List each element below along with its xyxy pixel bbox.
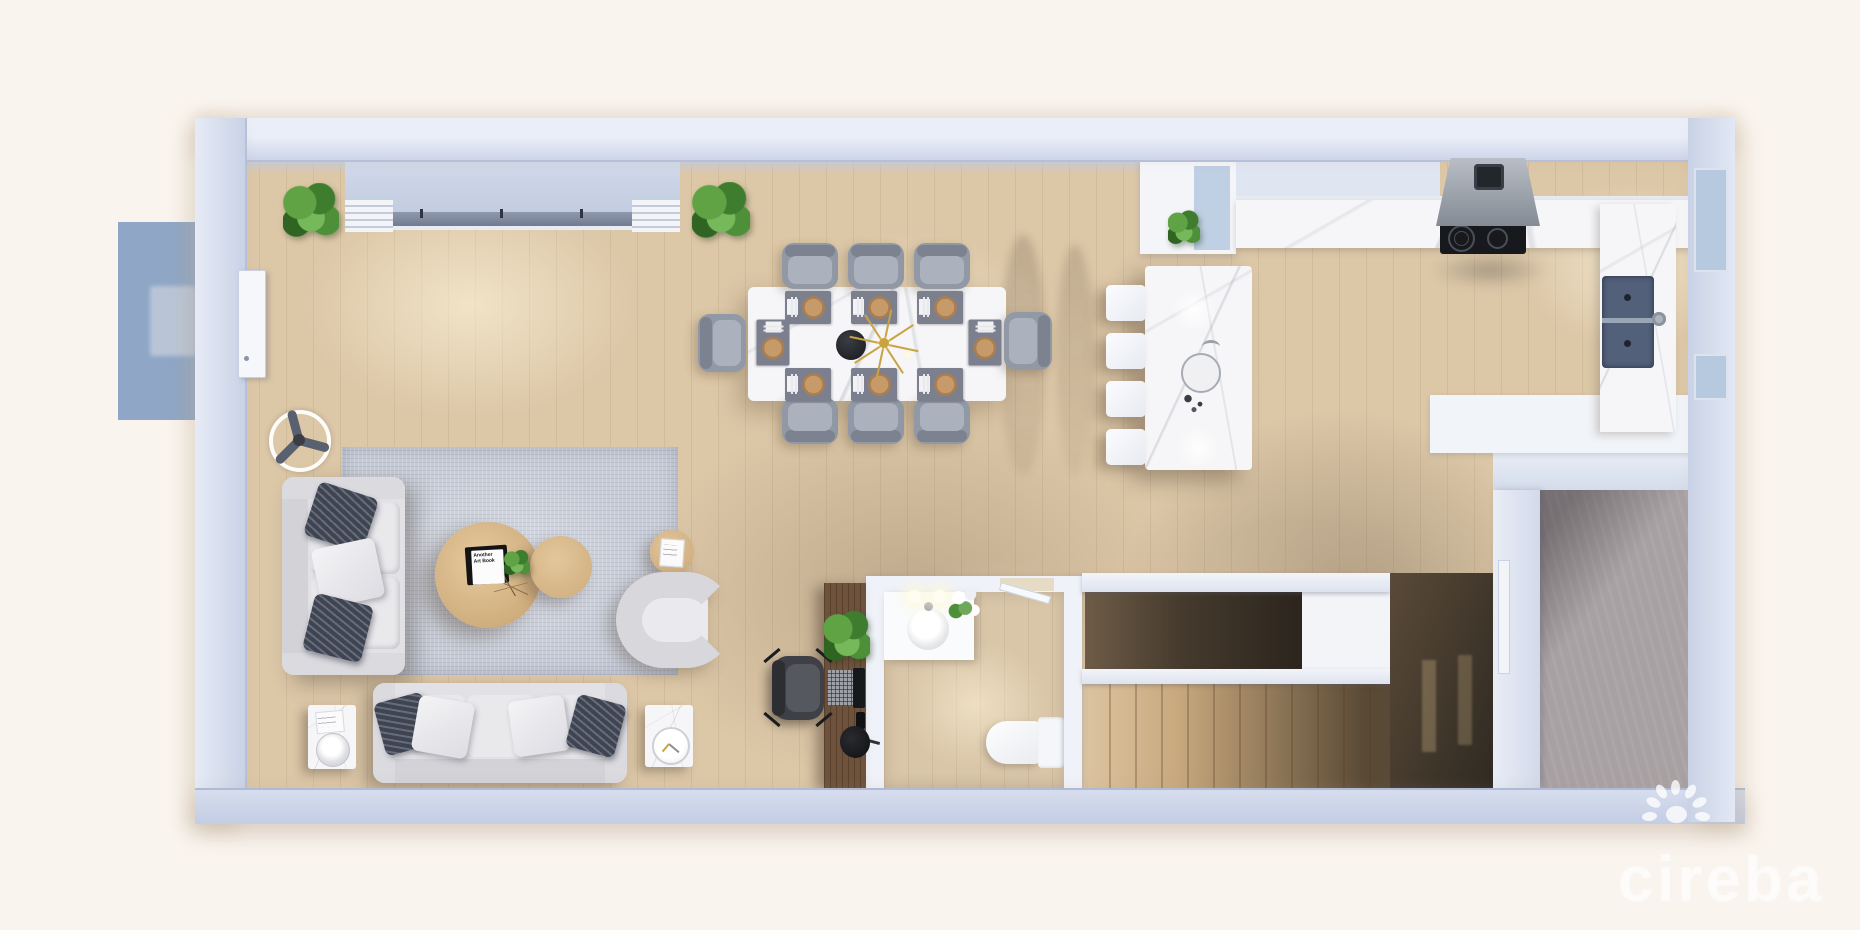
- paw-petal: [1642, 811, 1658, 822]
- hood-floor-shadow: [1430, 252, 1550, 288]
- place-setting: [969, 320, 1002, 366]
- stair-light-streak: [1422, 660, 1436, 752]
- vanity-faucet: [924, 602, 933, 611]
- sink-drain: [1624, 294, 1631, 301]
- dining-chair: [848, 398, 904, 444]
- island-sink: [1181, 353, 1221, 393]
- ceiling-fan: [266, 407, 332, 473]
- island-decor-speckles: [1182, 392, 1212, 414]
- desk-plant: [824, 610, 870, 664]
- sliding-door-frame: [352, 226, 674, 230]
- toilet-bowl: [986, 721, 1042, 764]
- vanity-sink: [907, 608, 949, 650]
- paw-pad: [1666, 806, 1687, 823]
- dining-chair: [914, 398, 970, 444]
- place-setting: [757, 320, 790, 366]
- utility-door: [1498, 560, 1510, 674]
- two-seat-sofa: [373, 683, 627, 783]
- glass-tick: [420, 209, 423, 218]
- side-table-mini-book: [659, 538, 685, 568]
- chandelier-hub: [879, 338, 889, 348]
- marble-side-table-left: [308, 705, 356, 769]
- place-setting: [851, 368, 897, 401]
- watermark-paw-logo-icon: [1630, 770, 1730, 840]
- three-seat-sofa: [282, 477, 405, 675]
- place-setting: [785, 368, 831, 401]
- toilet-tank: [1038, 717, 1064, 768]
- staircase-steps: [1085, 684, 1390, 788]
- range-hood-vent: [1474, 164, 1504, 190]
- utility-room-floor: [1540, 490, 1692, 788]
- sliding-door-glass: [352, 212, 674, 227]
- vanity-light: [908, 590, 921, 603]
- dining-chair: [782, 243, 838, 289]
- office-chair-back: [772, 660, 785, 716]
- armchair-frame: [616, 572, 734, 668]
- dining-chair: [782, 398, 838, 444]
- sofa-back: [373, 759, 627, 783]
- bar-stool: [1106, 333, 1146, 369]
- dining-chair: [914, 243, 970, 289]
- wall-bottom: [195, 788, 1745, 824]
- coffee-table-plant: [504, 550, 530, 576]
- coffee-table-book-title: Another Art Book: [473, 551, 498, 564]
- throw-pillow-white: [507, 694, 570, 757]
- counter-plant: [1168, 210, 1200, 246]
- island-glow: [1176, 426, 1220, 470]
- chandelier-bulb: [905, 352, 911, 358]
- bar-stool: [1106, 381, 1146, 417]
- office-chair: [768, 652, 828, 724]
- stair-light-streak: [1458, 655, 1472, 745]
- paw-petal: [1691, 795, 1708, 810]
- cooktop-burner: [1487, 228, 1508, 249]
- marble-side-table-right: [645, 705, 693, 767]
- island-faucet: [1202, 340, 1220, 354]
- place-setting: [785, 291, 831, 324]
- throw-pillow-white: [411, 695, 476, 760]
- utility-room-wall-top: [1493, 452, 1692, 490]
- stair-railing-top: [1082, 573, 1390, 592]
- place-setting: [917, 291, 963, 324]
- front-door: [238, 270, 266, 378]
- laptop: [827, 666, 865, 710]
- laptop-keyboard: [827, 670, 853, 706]
- stair-railing-mid: [1082, 669, 1390, 684]
- bar-stool: [1106, 285, 1146, 321]
- corner-plant-2: [692, 182, 750, 240]
- dining-chair: [848, 243, 904, 289]
- entry-mat-highlight: [150, 286, 196, 356]
- stair-void: [1085, 592, 1302, 669]
- watermark-text: cireba: [1618, 842, 1825, 916]
- wall-left: [195, 118, 247, 822]
- cooktop-burner: [1448, 225, 1475, 252]
- wall-top: [195, 118, 1735, 162]
- round-side-table: [650, 530, 694, 574]
- paw-petal: [1671, 780, 1680, 795]
- table-lamp: [316, 733, 350, 767]
- island-glow: [1172, 288, 1216, 332]
- kitchen-faucet: [1652, 312, 1666, 326]
- place-setting: [917, 368, 963, 401]
- door-handle: [244, 356, 249, 361]
- right-wall-window: [1694, 354, 1728, 400]
- round-coffee-table-small: [530, 536, 592, 598]
- bar-stool: [1106, 429, 1146, 465]
- window-vent: [632, 200, 680, 232]
- window-vent: [345, 200, 393, 232]
- table-vase: [836, 330, 866, 360]
- glass-tick: [500, 209, 503, 218]
- fan-hub: [293, 434, 305, 446]
- paw-petal: [1695, 811, 1711, 822]
- entry-mat: [118, 222, 202, 420]
- paw-petal: [1654, 783, 1670, 800]
- paw-petal: [1683, 783, 1699, 800]
- sink-divider: [1602, 318, 1654, 323]
- vanity-light: [933, 590, 946, 603]
- laptop-screen: [853, 668, 865, 708]
- office-chair-cushion: [786, 664, 820, 712]
- dining-chair: [1004, 312, 1052, 370]
- right-wall-window: [1694, 168, 1728, 272]
- coffee-table-book-white: Another Art Book: [471, 549, 505, 585]
- vanity-flowers: [948, 585, 984, 627]
- accent-armchair: [616, 572, 734, 668]
- stair-dark-landing: [1390, 573, 1493, 788]
- paw-petal: [1645, 795, 1662, 810]
- dining-chair: [698, 314, 746, 372]
- sink-drain: [1624, 340, 1631, 347]
- floor-plan-render: Another Art Book: [0, 0, 1860, 930]
- corner-plant: [283, 183, 339, 239]
- stair-landing-panel: [1302, 592, 1390, 669]
- column-shadow: [1056, 245, 1094, 475]
- side-table-book: [315, 710, 345, 734]
- glass-tick: [580, 209, 583, 218]
